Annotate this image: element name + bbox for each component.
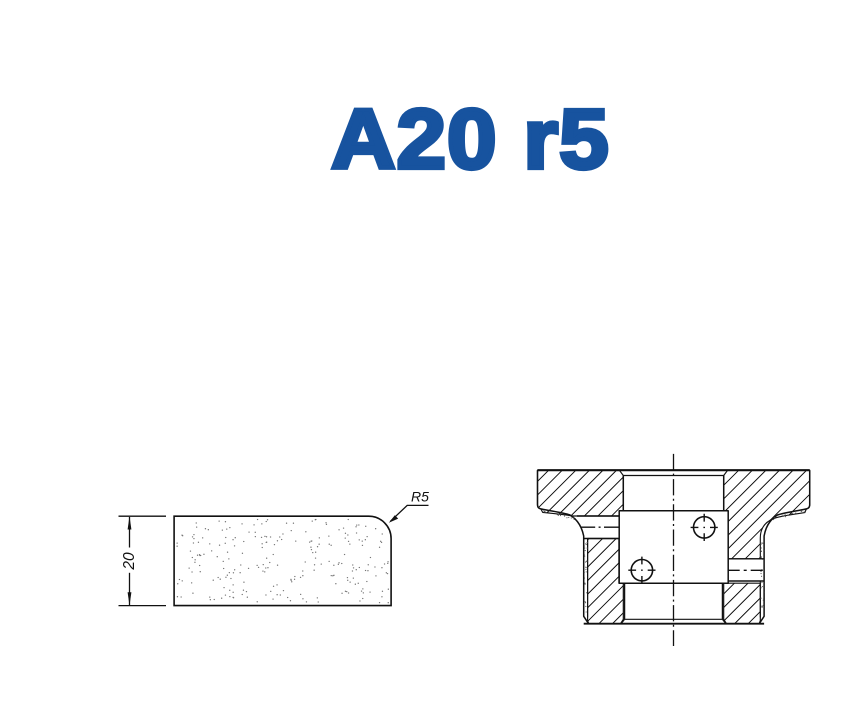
svg-text:20: 20 xyxy=(121,552,138,571)
svg-text:R5: R5 xyxy=(411,489,429,505)
